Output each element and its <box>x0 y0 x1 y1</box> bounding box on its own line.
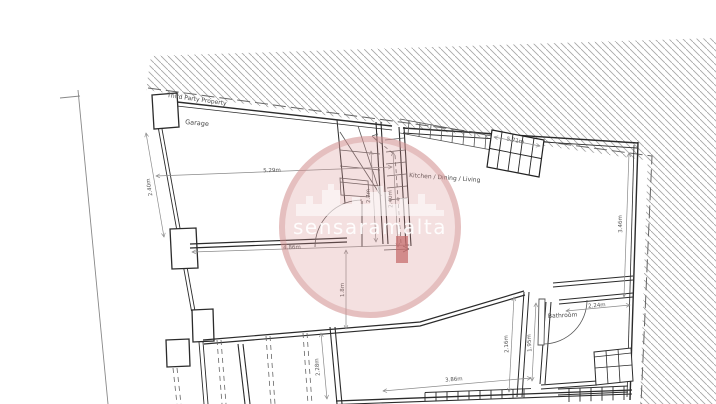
shower-grid <box>594 348 633 385</box>
hatch-third-party-right <box>640 150 716 404</box>
dim-garage-width: 5.29m <box>263 168 281 175</box>
driveway-dashed-lines <box>173 333 312 404</box>
hatch-third-party-top <box>146 38 716 170</box>
dim-right-side: 3.46m <box>618 215 625 233</box>
site-boundary-line <box>60 90 108 404</box>
pillar <box>166 339 190 367</box>
dim-bath-depth: 1.95m <box>527 334 534 352</box>
floor-plan: 5.29m 2.40m 5.71m 3.46m 2.7m 2.40m 4.86m… <box>0 0 716 404</box>
dim-bottom-width: 3.86m <box>445 376 463 384</box>
label-bathroom: Bathroom <box>548 311 578 320</box>
watermark-emblem: sensaramalta <box>279 136 461 318</box>
dim-store-depth: 2.28m <box>314 358 322 376</box>
pillar <box>170 228 198 269</box>
floor-plan-drawing: 5.29m 2.40m 5.71m 3.46m 2.7m 2.40m 4.86m… <box>0 0 716 404</box>
dim-bath-width: 2.24m <box>588 302 606 310</box>
dim-hall: 2.16m <box>504 335 511 353</box>
pillar <box>192 309 214 342</box>
watermark-text: sensaramalta <box>293 215 447 239</box>
watermark-accent-block <box>396 236 408 263</box>
label-garage: Garage <box>185 118 209 128</box>
dim-garage-side: 2.40m <box>146 178 155 196</box>
